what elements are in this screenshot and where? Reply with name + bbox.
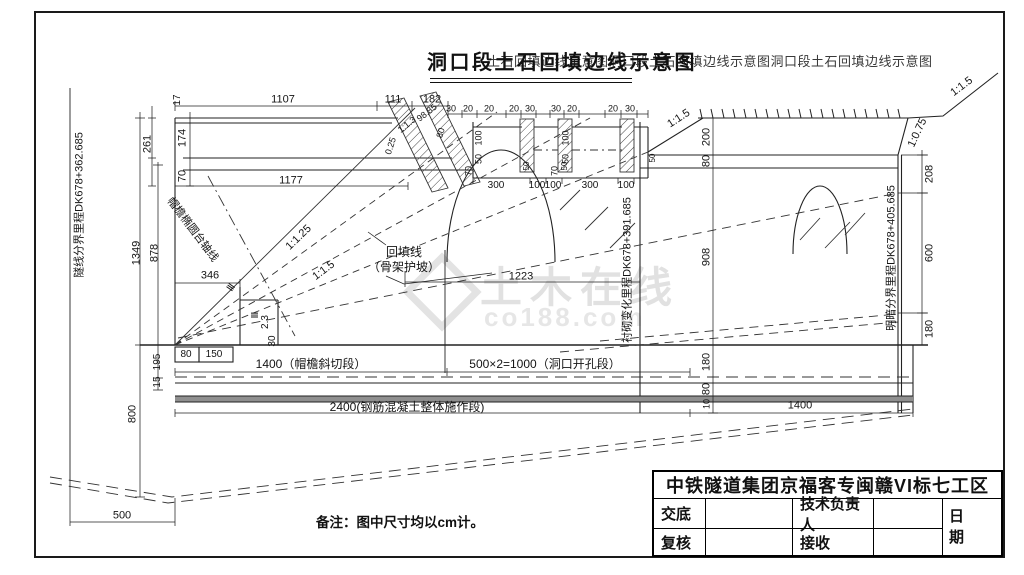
brim-axis-line [208,176,295,336]
review-value [705,528,792,555]
tech-lead-label: 技术负责人 [792,498,873,528]
title-block: 中铁隧道集团京福客专闽赣VI标七工区 交底 技术负责人 日 期 复核 接收 [652,470,1003,557]
drawing-title: 洞口段土石回填边线示意图 [427,46,697,75]
cad-sheet: 土木在线 co188.com [0,0,1024,575]
receive-value [873,528,942,555]
date-label: 日 期 [942,498,1001,555]
hatch-areas [388,92,865,248]
ground-line [698,109,908,118]
dimension-lines [70,101,928,526]
portal-arch-right [793,186,847,254]
handover-label: 交底 [654,498,705,528]
receive-label: 接收 [792,528,873,555]
dashed-lines [50,108,913,503]
leader-lines [368,232,492,284]
tech-lead-value [873,498,942,528]
backfill-line [178,193,898,338]
title-underline [430,78,632,79]
handover-value [705,498,792,528]
review-label: 复核 [654,528,705,555]
title-underline [430,82,632,83]
slab-band [175,396,913,402]
